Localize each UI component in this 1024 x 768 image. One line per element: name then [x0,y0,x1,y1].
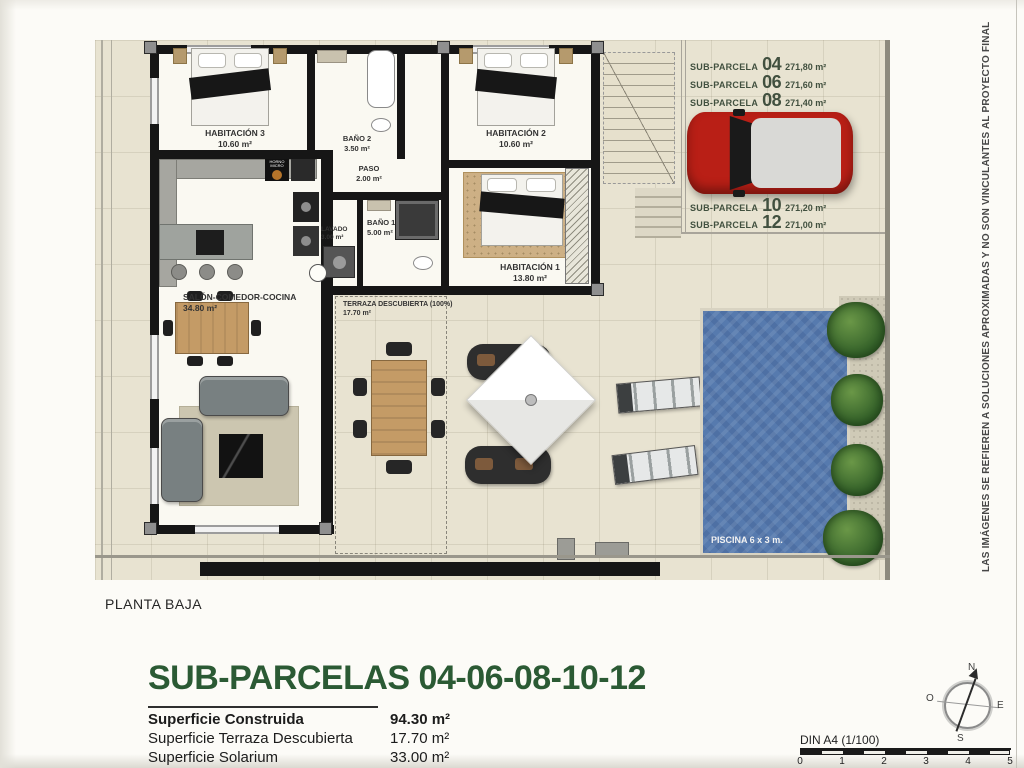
room-area: 3.00 m² [321,234,361,242]
wall-hab2-left [441,45,449,159]
scale-bar [800,750,1010,755]
nightstand [273,48,287,64]
wall-hab3-bottom [150,150,333,159]
surface-row: Superficie Solarium 33.00 m² [148,749,568,766]
room-label-lavado: LAVADO 3.00 m² [321,226,361,243]
outdoor-dining-table [371,360,427,456]
plot-boundary-line [101,40,103,580]
window [195,525,279,534]
subparcela-label: SUB-PARCELA [690,98,758,108]
wall-corner [591,41,604,54]
cooktop-icon [196,230,224,255]
appliance-tower [293,226,319,256]
sun-lounger [616,376,702,413]
subparcela-label: SUB-PARCELA [690,80,758,90]
wall-corner [144,522,157,535]
compass-south-label: S [957,733,964,744]
oven-glow [272,170,282,180]
scale-tick: 3 [920,756,932,767]
pillow [526,178,556,192]
kitchen-island [159,224,253,260]
room-area: 2.00 m² [341,174,397,184]
pillow [234,53,262,68]
surface-label: Superficie Solarium [148,749,390,766]
appliance-dial [301,236,311,246]
bathtub-icon [367,50,395,108]
car-roof [751,118,841,188]
dining-chair [251,320,261,336]
room-area: 34.80 m² [183,303,313,314]
page-title: SUB-PARCELAS 04-06-08-10-12 [148,659,646,698]
sheet-edge-line [1016,0,1017,768]
bed-habitacion1 [481,174,563,246]
wall-lavado-bano1 [357,200,363,286]
room-name: HABITACIÓN 3 [205,128,265,138]
scale-tick: 4 [962,756,974,767]
pillow [484,53,512,68]
outdoor-chair [353,420,367,438]
window [150,335,159,399]
sofa [161,418,203,502]
blanket [475,69,557,99]
blanket [189,68,271,100]
surface-value: 33.00 m² [390,749,449,766]
wall-corner [437,41,450,54]
room-name: SALÓN-COMEDOR-COCINA [183,292,296,302]
plot-right-wall [885,40,890,580]
subparcela-label: SUB-PARCELA [690,220,758,230]
wall-paso-bottom [333,192,441,200]
dining-chair [217,356,233,366]
floor-label: PLANTA BAJA [105,596,202,612]
outdoor-chair [431,420,445,438]
appliance-dial [301,202,311,212]
wall-right [591,45,600,295]
room-area: 17.70 m² [343,309,453,318]
wall-hab3-bano2 [307,45,315,159]
cushion [475,458,493,470]
bar-stool [199,264,215,280]
stairs [603,52,675,184]
plot-boundary-line [111,40,112,580]
parasol-pole [525,394,537,406]
surface-row: Superficie Terraza Descubierta 17.70 m² [148,730,568,747]
room-area: 10.60 m² [190,139,280,150]
window [150,448,159,504]
pillow [487,178,517,192]
room-name: LAVADO [321,226,347,233]
disclaimer-text: LAS IMÁGENES SE REFIEREN A SOLUCIONES AP… [981,52,992,572]
subparcela-area: 271,80 m² [785,62,826,72]
room-name: HABITACIÓN 1 [500,262,560,272]
subparcela-area: 271,40 m² [785,98,826,108]
wall-salon-right [321,150,333,534]
compass-west-label: O [926,693,934,704]
fridge-icon [291,159,315,181]
room-label-habitacion2: HABITACIÓN 2 10.60 m² [471,128,561,150]
subparcela-label: SUB-PARCELA [690,62,758,72]
outdoor-chair [386,342,412,356]
bar-stool [171,264,187,280]
subparcela-number: 08 [762,90,781,111]
bar-stool [227,264,243,280]
room-label-habitacion3: HABITACIÓN 3 10.60 m² [190,128,280,150]
surface-value: 94.30 m² [390,711,450,728]
nightstand [559,48,573,64]
outdoor-chair [431,378,445,396]
pillow [198,53,226,68]
piscina-label: PISCINA 6 x 3 m. [711,535,783,545]
toilet-icon [413,256,433,270]
surface-value: 17.70 m² [390,730,449,747]
subparcela-row-08: SUB-PARCELA 08 271,40 m² [690,90,865,111]
surface-label: Superficie Construida [148,711,390,728]
floor-plan: HORNO MICRO [95,40,890,580]
car [687,112,853,194]
dining-chair [187,356,203,366]
surface-label: Superficie Terraza Descubierta [148,730,390,747]
compass-east-label: E [997,700,1004,711]
bathroom-vanity [367,200,391,211]
bush [831,444,883,496]
scale-tick: 5 [1004,756,1016,767]
brochure-page: HORNO MICRO [0,0,1024,768]
wall-bano2-paso [397,45,405,159]
room-name: HABITACIÓN 2 [486,128,546,138]
room-area: 3.50 m² [321,144,393,154]
appliance-tower [293,192,319,222]
room-label-bano2: BAÑO 2 3.50 m² [321,134,393,154]
bush [831,374,883,426]
pool: PISCINA 6 x 3 m. [700,308,850,556]
wall-corner [319,522,332,535]
room-label-bano1: BAÑO 1 5.00 m² [367,218,427,238]
window [150,78,159,124]
subparcela-row-12: SUB-PARCELA 12 271,00 m² [690,212,865,233]
subparcela-number: 12 [762,212,781,233]
nightstand [459,48,473,64]
room-area: 10.60 m² [471,139,561,150]
sun-lounger [611,445,698,485]
room-label-paso: PASO 2.00 m² [341,164,397,184]
title-rule [148,706,378,708]
outdoor-chair [386,460,412,474]
room-name: BAÑO 1 [367,218,395,227]
scale-tick: 2 [878,756,890,767]
cushion [477,354,495,366]
room-name: BAÑO 2 [343,134,371,143]
room-name: PASO [359,164,380,173]
driveway-boundary-line [681,40,682,232]
room-area: 5.00 m² [367,228,427,238]
coffee-table [219,434,263,478]
room-label-terraza: TERRAZA DESCUBIERTA (100%) 17.70 m² [343,300,453,318]
room-label-habitacion1: HABITACIÓN 1 13.80 m² [475,262,585,284]
subparcela-area: 271,00 m² [785,220,826,230]
room-area: 13.80 m² [475,273,585,284]
subparcela-area: 271,60 m² [785,80,826,90]
wall-band-bottom [321,286,600,295]
wall-corner [144,41,157,54]
pillow [520,53,548,68]
exterior-steps [635,188,681,238]
wall-hab1-left [441,150,449,295]
compass-north-label: N [968,662,975,673]
bush [827,302,885,358]
sofa [199,376,289,416]
blanket [479,191,564,218]
scale-label: DIN A4 (1/100) [800,733,879,747]
plot-bottom-line [95,555,890,558]
washer-icon [323,246,355,278]
room-name: TERRAZA DESCUBIERTA (100%) [343,301,452,308]
bed-habitacion2 [477,48,555,126]
bottom-wall-band [200,562,660,576]
driveway-boundary-line [685,40,686,232]
room-label-salon: SALÓN-COMEDOR-COCINA 34.80 m² [183,292,313,314]
bed-habitacion3 [191,48,269,126]
wall-corner [591,283,604,296]
scale-tick: 0 [794,756,806,767]
scale-tick: 1 [836,756,848,767]
dining-chair [163,320,173,336]
caldera-icon [309,264,327,282]
washer-drum [333,256,346,269]
nightstand [173,48,187,64]
outdoor-chair [353,378,367,396]
toilet-icon [371,118,391,132]
wall-hab1-top [449,160,591,168]
surface-row: Superficie Construida 94.30 m² [148,711,568,728]
bathroom-vanity [317,50,347,63]
